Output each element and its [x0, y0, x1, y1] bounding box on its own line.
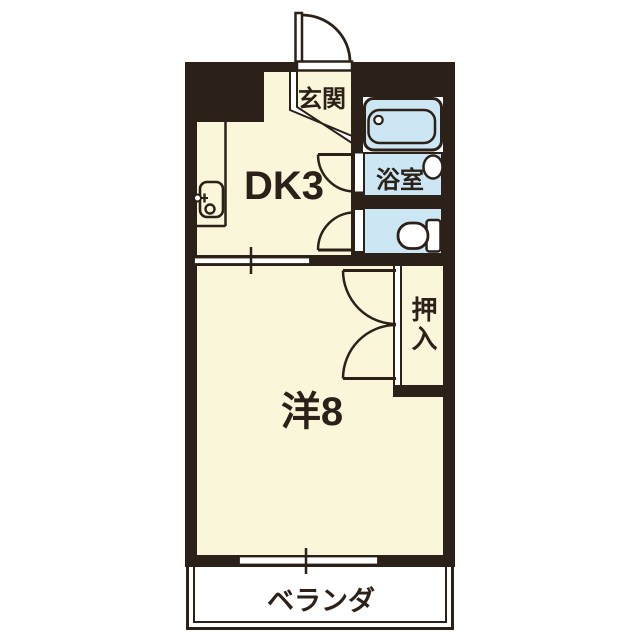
bathtub-faucet-icon — [374, 116, 382, 124]
room-label-western: 洋8 — [242, 379, 382, 437]
room-label-bathroom: 浴室 — [370, 160, 430, 195]
toilet-door-arc — [318, 213, 355, 251]
entrance-door-arc — [302, 15, 351, 62]
room-label-balcony: ベランダ — [221, 579, 421, 618]
bathroom-doorway-gap — [355, 154, 363, 192]
room-label-dk: DK3 — [214, 164, 354, 209]
room-label-genkan: 玄関 — [292, 79, 352, 114]
balcony-window — [239, 557, 378, 565]
toilet-doorway-gap — [355, 210, 363, 251]
closet-door-arc-bottom — [343, 325, 396, 379]
toilet-icon — [398, 223, 428, 249]
entrance-door-sill — [297, 62, 352, 71]
floorplan: 玄関 DK3 浴室 押入 洋8 ベランダ — [0, 0, 640, 640]
entrance-door-leaf — [296, 13, 303, 62]
room-label-closet: 押入 — [405, 296, 442, 354]
closet-door-arc-top — [343, 271, 396, 325]
kitchen-faucet-icon — [194, 195, 201, 202]
